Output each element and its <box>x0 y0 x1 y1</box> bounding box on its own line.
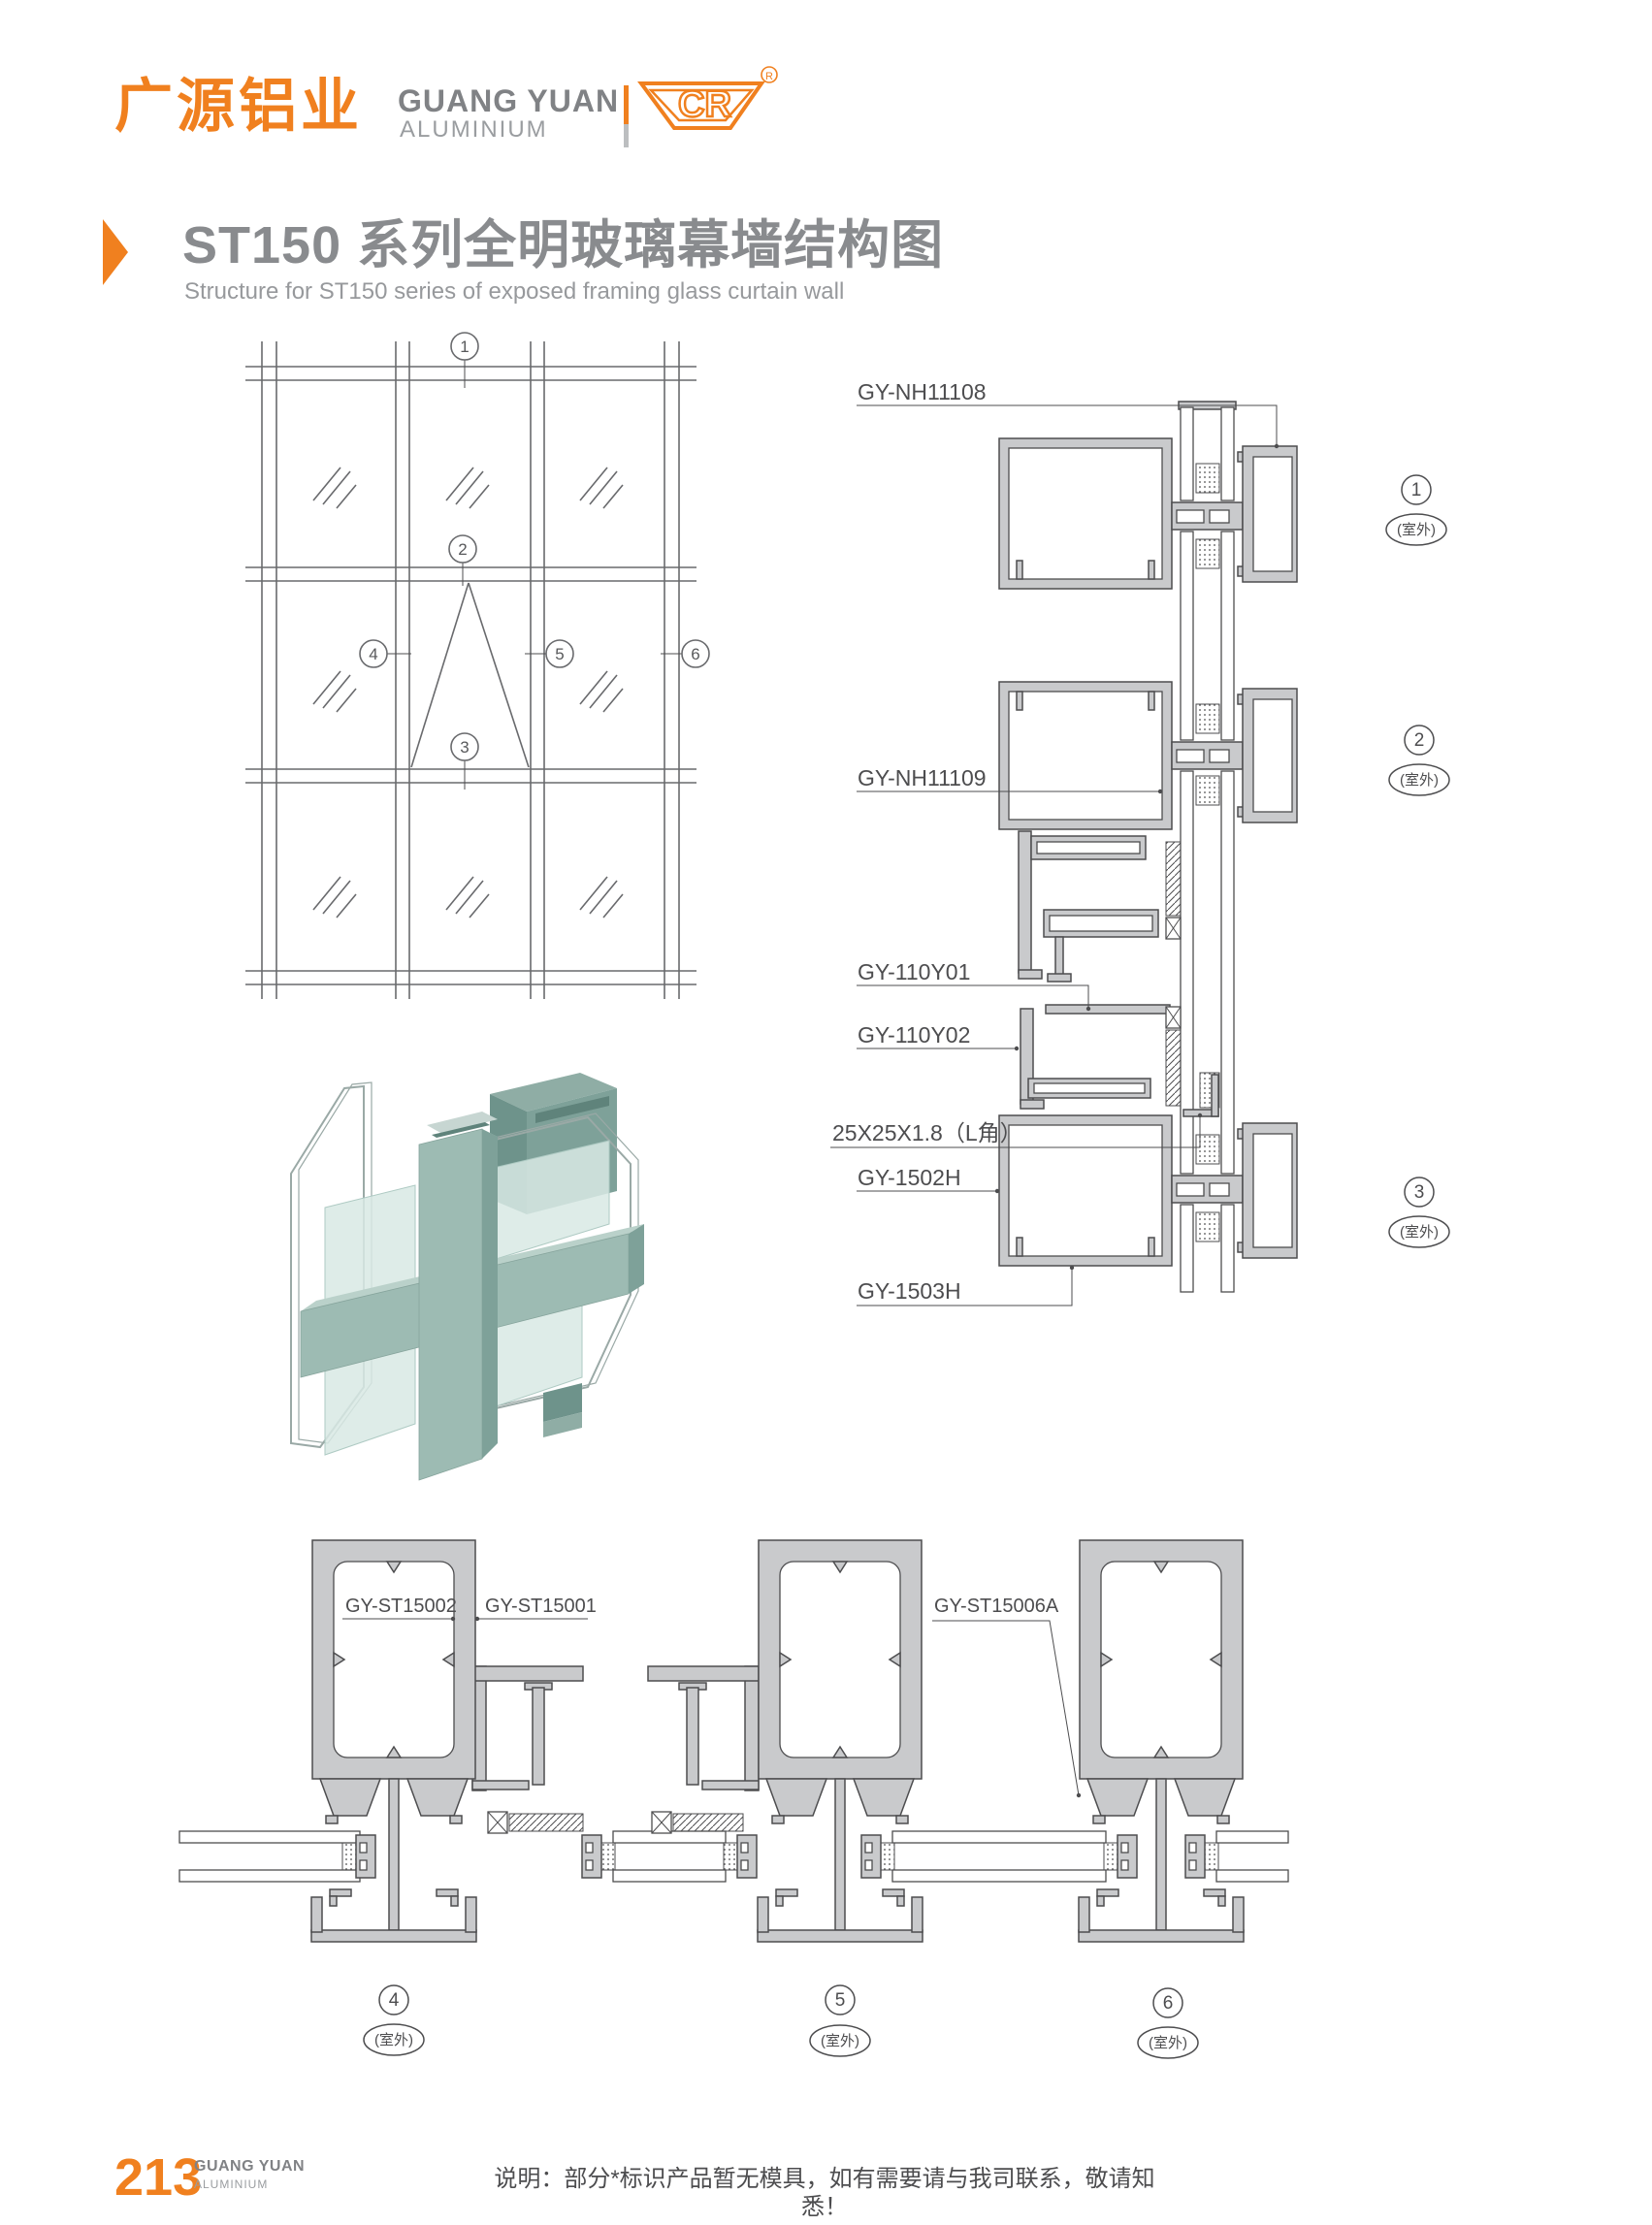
outdoor-label: (室外) <box>1397 522 1436 538</box>
vent-sash-upper <box>1019 831 1181 982</box>
elevation-transoms <box>245 367 696 984</box>
callout-2: 2 <box>1414 730 1425 751</box>
plan-glass-bands <box>179 1831 1288 1882</box>
vertical-section-drawing: GY-NH11108 GY-NH11109 GY-110Y01 GY-110Y0… <box>829 380 1499 1326</box>
outdoor-label: (室外) <box>1400 1224 1439 1241</box>
callout-6: 6 <box>691 645 699 663</box>
brand-logo-en: GUANG YUAN <box>398 85 619 116</box>
part-label: GY-ST15006A <box>934 1596 1059 1617</box>
part-label: GY-1502H <box>858 1165 961 1190</box>
callout-5: 5 <box>835 1990 846 2011</box>
part-label: 25X25X1.8（L角） <box>832 1120 1022 1145</box>
outdoor-label: (室外) <box>821 2033 859 2049</box>
header-divider-lower <box>624 124 629 147</box>
callout-1: 1 <box>460 338 469 356</box>
callout-6: 6 <box>1163 1993 1174 2014</box>
registered-mark: R <box>765 71 773 82</box>
horizontal-section-callouts: 4 (室外) 5 (室外) 6 (室外) <box>364 1985 1198 2058</box>
part-label: GY-110Y02 <box>858 1022 970 1048</box>
part-label: GY-110Y01 <box>858 959 970 984</box>
header-divider <box>624 85 629 124</box>
part-label: GY-1503H <box>858 1278 961 1304</box>
outdoor-label: (室外) <box>1400 772 1439 789</box>
page-subtitle: Structure for ST150 series of exposed fr… <box>184 280 844 304</box>
cr-logo-icon: CR R <box>635 64 781 151</box>
outdoor-label: (室外) <box>1149 2035 1187 2051</box>
horizontal-section-drawing: GY-ST15002 GY-ST15001 GY-ST15006A 4 (室外)… <box>170 1534 1295 2063</box>
elevation-mullions <box>262 341 679 999</box>
callout-5: 5 <box>555 645 564 663</box>
elevation-callouts: 1 2 3 4 5 6 <box>360 333 709 790</box>
part-label: GY-ST15002 <box>345 1596 457 1617</box>
catalog-page: 广源铝业 GUANG YUAN ALUMINIUM CR R ST150 系列全… <box>0 0 1652 2225</box>
callout-4: 4 <box>369 645 377 663</box>
render-mullion-bar <box>419 1112 498 1480</box>
part-label: GY-NH11109 <box>858 765 987 790</box>
part-label: GY-NH11108 <box>858 380 987 404</box>
plan-vent-sashes <box>472 1666 759 1833</box>
callout-3: 3 <box>1414 1182 1425 1203</box>
vent-sash-right <box>648 1666 759 1833</box>
cr-logo-text: CR <box>678 84 731 125</box>
transom-box-1 <box>999 438 1172 589</box>
transom-box-2 <box>999 682 1172 829</box>
vent-sash-left <box>472 1666 583 1833</box>
glass-hatch-marks <box>313 468 623 918</box>
footer-brand-sub: ALUMINIUM <box>194 2178 268 2190</box>
outdoor-label: (室外) <box>374 2032 413 2048</box>
elevation-drawing: 1 2 3 4 5 6 <box>228 325 718 1028</box>
brand-logo-cn: 广源铝业 <box>114 78 363 136</box>
callout-1: 1 <box>1411 480 1422 500</box>
page-number: 213 <box>114 2151 202 2204</box>
transom-box-3 <box>999 1115 1172 1266</box>
callout-2: 2 <box>458 540 467 559</box>
vent-opening-symbol <box>411 583 529 767</box>
render-profile-stubs <box>543 1383 582 1437</box>
part-label: GY-ST15001 <box>485 1596 597 1617</box>
vertical-section-callouts: 1 (室外) 2 (室外) 3 (室外) <box>1386 475 1449 1247</box>
footer-brand: GUANG YUAN <box>194 2159 305 2175</box>
page-title: ST150 系列全明玻璃幕墙结构图 <box>182 219 944 272</box>
brand-logo-en-sub: ALUMINIUM <box>400 118 548 142</box>
title-arrow-icon <box>103 219 128 285</box>
section-glass <box>1179 402 1236 1292</box>
footer-note: 说明：部分*标识产品暂无模具，如有需要请与我司联系，敬请知悉！ <box>490 2166 1159 2222</box>
callout-3: 3 <box>460 738 469 757</box>
profile-3d-render <box>276 1067 674 1518</box>
callout-4: 4 <box>389 1990 400 2011</box>
